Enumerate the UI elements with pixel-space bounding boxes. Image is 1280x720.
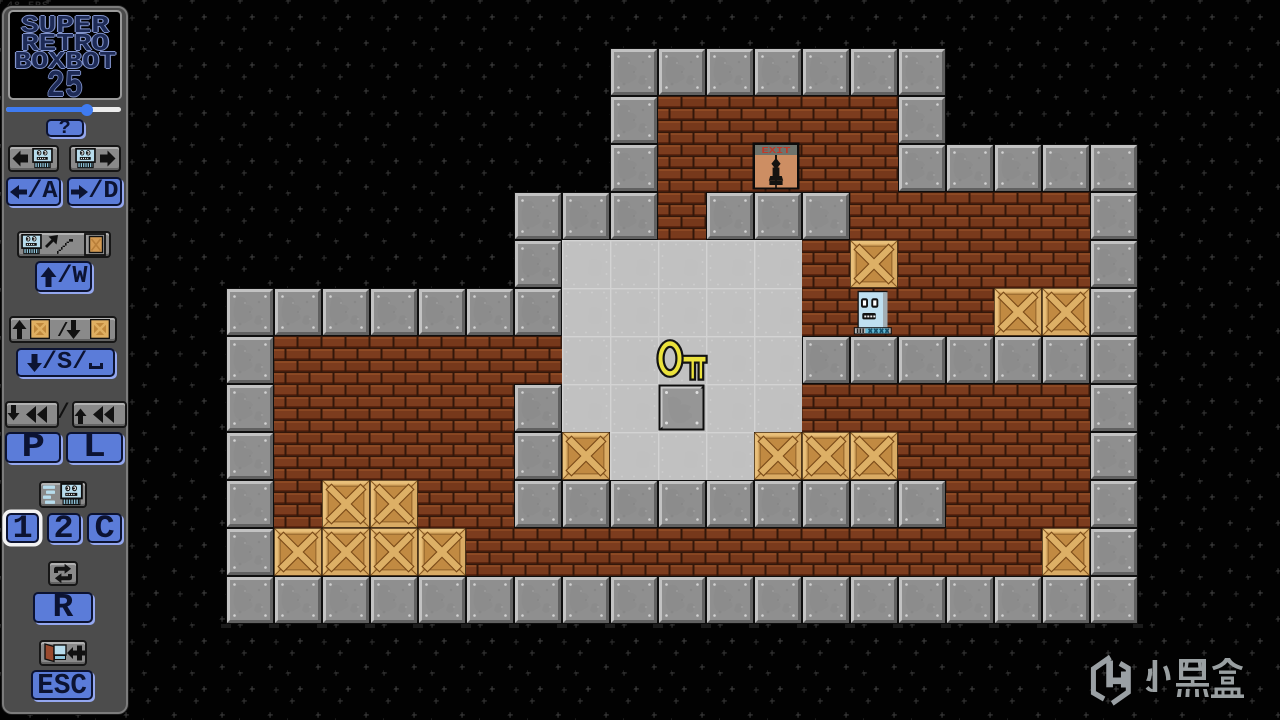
svg-text:EXIT: EXIT — [762, 146, 792, 156]
svg-text:/: / — [57, 320, 68, 341]
